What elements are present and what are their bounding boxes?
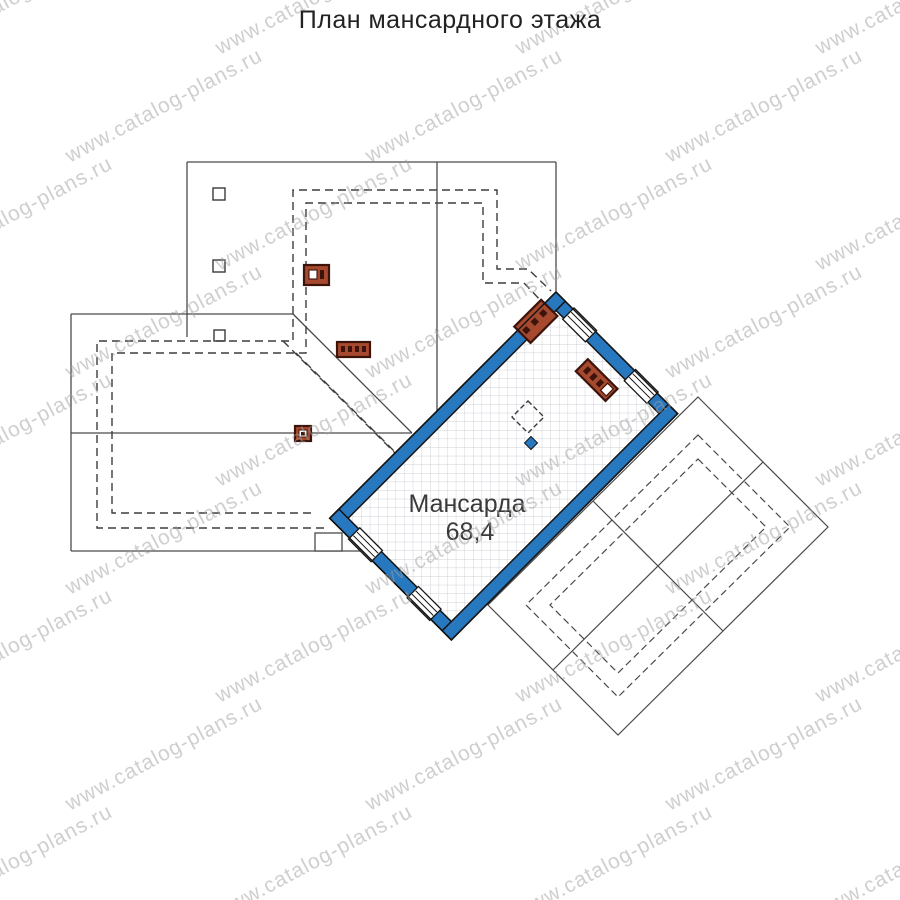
chimney-four-flue bbox=[337, 342, 370, 357]
roof-hatch-1 bbox=[213, 188, 225, 200]
flue bbox=[362, 346, 366, 352]
chimney-top-wing bbox=[304, 265, 329, 285]
left-wing-annex bbox=[315, 533, 342, 551]
floor-plan-canvas: Мансарда 68,4 www.catalog-plans.ruwww.ca… bbox=[0, 0, 900, 900]
flue bbox=[341, 346, 345, 352]
floor-plan-svg: Мансарда 68,4 www.catalog-plans.ruwww.ca… bbox=[0, 0, 900, 900]
flue bbox=[320, 270, 324, 279]
flue bbox=[355, 346, 359, 352]
page-title: План мансардного этажа bbox=[299, 6, 601, 34]
flue bbox=[348, 346, 352, 352]
roof-hatch-3 bbox=[214, 330, 225, 341]
flue-open bbox=[309, 270, 317, 279]
